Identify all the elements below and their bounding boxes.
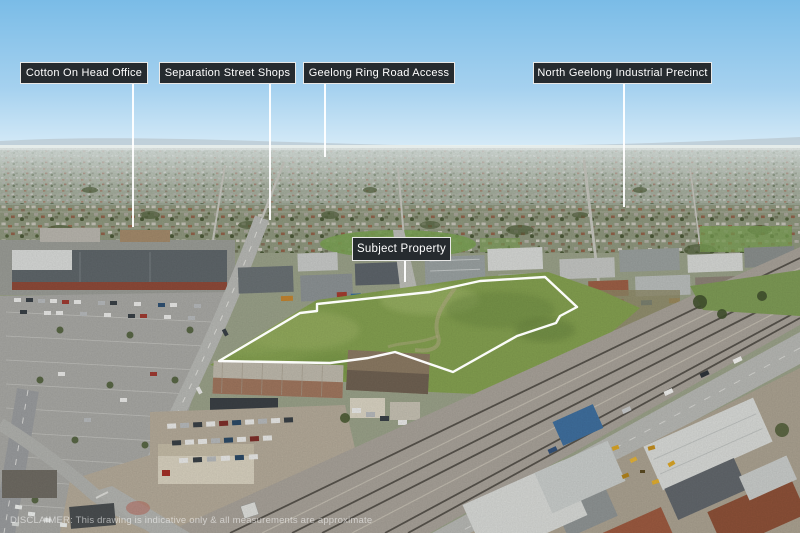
photo-grain [0,148,800,533]
leader-line-industrial-precinct [623,84,625,207]
aerial-marketing-image: Cotton On Head Office Separation Street … [0,0,800,533]
label-geelong-ring-road-access: Geelong Ring Road Access [303,62,455,84]
leader-line-subject-property [404,261,406,282]
label-separation-street-shops: Separation Street Shops [159,62,296,84]
label-north-geelong-industrial-precinct: North Geelong Industrial Precinct [533,62,712,84]
disclaimer-text: DISCLAIMER: This drawing is indicative o… [10,515,372,526]
label-text: Cotton On Head Office [26,67,142,79]
label-text: Subject Property [357,243,446,255]
leader-line-separation-street [269,84,271,220]
label-text: North Geelong Industrial Precinct [537,67,707,79]
label-cotton-on-head-office: Cotton On Head Office [20,62,148,84]
label-subject-property: Subject Property [352,237,451,261]
label-text: Separation Street Shops [165,67,291,79]
leader-line-ring-road [324,84,326,157]
leader-line-cotton-on [132,84,134,227]
label-text: Geelong Ring Road Access [309,67,450,79]
